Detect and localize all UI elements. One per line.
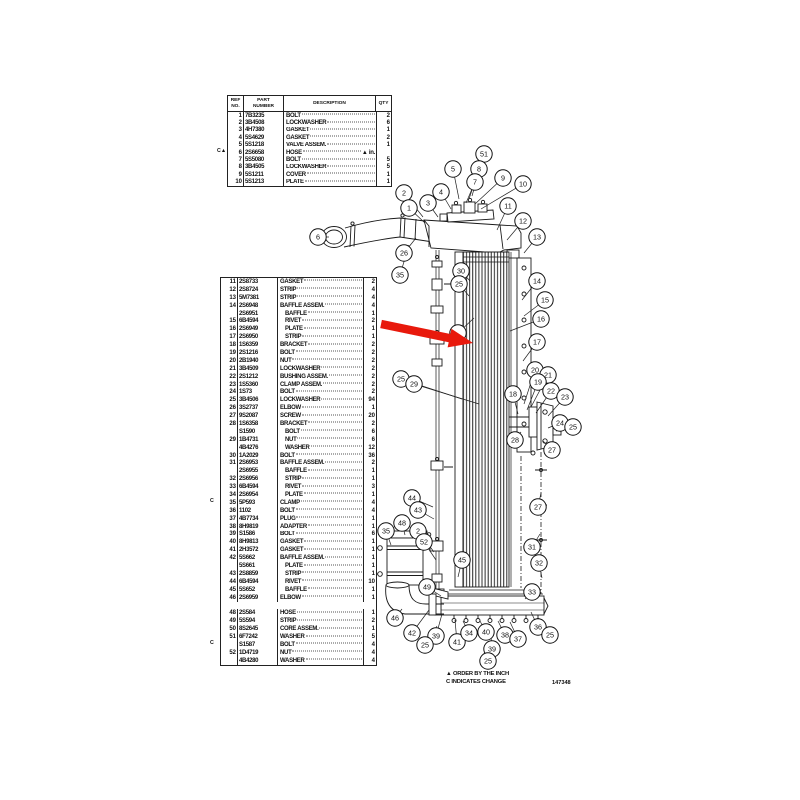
table-row: 2S6951BAFFLE1 [221, 310, 376, 318]
callout-17: 17 [529, 334, 545, 350]
quantity: 1 [376, 127, 391, 134]
ref-no: 7 [228, 156, 244, 163]
description: GASKET [278, 546, 363, 554]
part-number: 2S6658 [244, 149, 284, 156]
part-number: 5P593 [238, 499, 278, 507]
exploded-view-diagram: 6213455187910111213263514151617302525292… [0, 0, 800, 800]
callout-18: 18 [505, 386, 521, 402]
ref-no: 21 [221, 365, 238, 373]
part-number: 2S6959 [238, 594, 278, 602]
dot-leader [302, 406, 362, 407]
description: CLAMP [278, 499, 363, 507]
table-row: 231S5360CLAMP ASSEM.2 [221, 381, 376, 389]
dot-leader [327, 121, 375, 122]
description: BOLT [278, 507, 363, 515]
dot-leader [296, 509, 362, 510]
quantity: 1 [363, 333, 376, 341]
dot-leader [296, 351, 362, 352]
description-text: BOLT [280, 453, 295, 459]
svg-text:27: 27 [548, 446, 556, 455]
callout-14: 14 [529, 273, 545, 289]
callout-23: 23 [557, 389, 573, 405]
table-row: 336B4594RIVET3 [221, 483, 376, 491]
description-text: HOSE [280, 610, 296, 616]
description: BOLT [278, 388, 363, 396]
callout-49: 49 [419, 579, 435, 595]
dot-leader [302, 414, 362, 415]
part-number: 4B7734 [238, 515, 278, 523]
quantity: 2 [363, 617, 376, 625]
quantity: 36 [363, 452, 376, 460]
header-desc: DESCRIPTION [284, 96, 376, 111]
description-text: BOLT [280, 350, 295, 356]
part-number: 6B4594 [238, 317, 278, 325]
dot-leader [304, 548, 362, 549]
description-text: PLATE [285, 326, 303, 332]
part-number: 2S6953 [238, 459, 278, 467]
ref-no: 4 [228, 134, 244, 141]
table-row: 39S1586BOLT6 [221, 531, 376, 539]
callout-35: 35 [378, 523, 394, 539]
quantity: 1 [363, 538, 376, 546]
description: BOLT [278, 428, 363, 436]
part-number: 8H9813 [238, 538, 278, 546]
description-text: BOLT [285, 429, 300, 435]
callout-7: 7 [467, 174, 483, 190]
description: BOLT [284, 112, 376, 119]
svg-text:17: 17 [533, 338, 541, 347]
description-text: BRACKET [280, 342, 307, 348]
callout-2: 2 [396, 185, 412, 201]
description-text: BRACKET [280, 421, 307, 427]
part-number: 2S8733 [238, 278, 278, 286]
table-row: 122S8724STRIP4 [221, 286, 376, 294]
table-row: 181S6359BRACKET2 [221, 341, 376, 349]
svg-text:35: 35 [396, 271, 404, 280]
ref-no: 41 [221, 546, 238, 554]
svg-text:46: 46 [391, 614, 399, 623]
footnotes: ▲ ORDER BY THE INCH C INDICATES CHANGE [446, 670, 509, 687]
ref-no [221, 310, 238, 318]
svg-text:29: 29 [410, 380, 418, 389]
dot-leader [302, 580, 362, 581]
ref-no: 23 [221, 381, 238, 389]
change-marker: C [210, 641, 214, 646]
quantity: 5 [363, 633, 376, 641]
description: RIVET [278, 483, 363, 491]
description: BRACKET [278, 341, 363, 349]
description-text: STRIP [285, 476, 301, 482]
svg-text:4: 4 [439, 188, 443, 197]
dot-leader [325, 304, 362, 305]
ref-no: 30 [221, 452, 238, 460]
description: ELBOW [278, 594, 363, 602]
ref-no: 18 [221, 341, 238, 349]
quantity: 12 [363, 444, 376, 452]
table-row: 17B3235BOLT2 [228, 112, 391, 119]
table-row: 162S6949PLATE1 [221, 325, 376, 333]
callout-27: 27 [544, 442, 560, 458]
part-number: 2S6954 [238, 491, 278, 499]
table-row: 142S6948BAFFLE ASSEM.4 [221, 302, 376, 310]
quantity: 1 [363, 546, 376, 554]
callout-46: 46 [387, 610, 403, 626]
ref-no: 34 [221, 491, 238, 499]
callout-10: 10 [515, 176, 531, 192]
description: COVER [284, 171, 376, 178]
description-text: RIVET [285, 318, 301, 324]
quantity: 6 [363, 531, 376, 539]
description-text: BOLT [280, 642, 295, 648]
quantity: 1 [363, 404, 376, 412]
description: GASKET [284, 134, 376, 141]
quantity: 6 [376, 119, 391, 126]
table-row: 156B4594RIVET2 [221, 317, 376, 325]
svg-text:25: 25 [421, 641, 429, 650]
description-text: NUT [280, 358, 291, 364]
description: CORE ASSEM. [278, 625, 363, 633]
dot-leader [304, 327, 362, 328]
description: BAFFLE ASSEM. [278, 302, 363, 310]
description-text: BOLT [280, 508, 295, 514]
ref-no [221, 657, 238, 665]
table-row: 4B4276WASHER12 [221, 444, 376, 452]
description-text: LOCKWASHER [280, 397, 320, 403]
description: HOSE [278, 609, 363, 617]
description-text: WASHER [280, 658, 305, 664]
description-text: BAFFLE ASSEM. [280, 303, 324, 309]
dot-leader [302, 477, 362, 478]
dot-leader [308, 312, 362, 313]
quantity: 2 [376, 134, 391, 141]
table-row: 495S594STRIP2 [221, 617, 376, 625]
svg-text:12: 12 [519, 217, 527, 226]
table-row: 408H9813GASKET1 [221, 538, 376, 546]
table-row: 135M7381STRIP4 [221, 294, 376, 302]
table-row: 222S1212BUSHING ASSEM.2 [221, 373, 376, 381]
table-row: 446B4594RIVET10 [221, 578, 376, 586]
table-row: 342S6954PLATE1 [221, 491, 376, 499]
ref-no: 43 [221, 570, 238, 578]
ref-no: 36 [221, 507, 238, 515]
ref-no [221, 467, 238, 475]
description: BAFFLE [278, 467, 363, 475]
quantity: 4 [363, 286, 376, 294]
table-row: 202B1940NUT2 [221, 357, 376, 365]
table-row: 253B4506LOCKWASHER94 [221, 396, 376, 404]
table-row: 23B4508LOCKWASHER6 [228, 119, 391, 126]
callout-37: 37 [510, 631, 526, 647]
svg-text:19: 19 [534, 378, 542, 387]
description-text: BOLT [286, 157, 301, 163]
dot-leader [302, 572, 362, 573]
quantity: 2 [363, 381, 376, 389]
header-ref: REF NO. [228, 96, 244, 111]
part-number: 3B4508 [244, 119, 284, 126]
svg-text:23: 23 [561, 393, 569, 402]
table-row: 83B4505LOCKWASHER5 [228, 164, 391, 171]
ref-no: 13 [221, 294, 238, 302]
dot-leader [296, 390, 362, 391]
description-text: PLATE [286, 179, 304, 185]
table-row: 432S8859STRIP1 [221, 570, 376, 578]
description: BOLT [284, 156, 376, 163]
svg-text:41: 41 [453, 638, 461, 647]
dot-leader [319, 627, 362, 628]
quantity: 6 [363, 428, 376, 436]
description-text: COVER [286, 172, 306, 178]
quantity: 1 [363, 491, 376, 499]
quantity: 1 [363, 594, 376, 602]
callout-35: 35 [392, 267, 408, 283]
note-indicates-change: C INDICATES CHANGE [446, 678, 509, 686]
quantity: 1 [363, 562, 376, 570]
part-number: 5S1211 [244, 171, 284, 178]
quantity: 1 [363, 325, 376, 333]
dot-leader [297, 438, 362, 439]
description: BAFFLE ASSEM. [278, 459, 363, 467]
quantity: 4 [363, 641, 376, 649]
ref-no: 17 [221, 333, 238, 341]
description: GASKET [284, 127, 376, 134]
table-row: 34H7380GASKET1 [228, 127, 391, 134]
description-text: BOLT [280, 531, 295, 537]
description: CLAMP ASSEM. [278, 381, 363, 389]
quantity: 94 [363, 396, 376, 404]
svg-text:25: 25 [484, 657, 492, 666]
description-text: NUT [285, 437, 296, 443]
table-row: 172S6950STRIP1 [221, 333, 376, 341]
ref-no: 24 [221, 388, 238, 396]
svg-text:16: 16 [537, 315, 545, 324]
svg-text:34: 34 [465, 629, 473, 638]
ref-no: 27 [221, 412, 238, 420]
quantity: 1 [363, 586, 376, 594]
ref-no: 29 [221, 436, 238, 444]
ref-no: 48 [221, 609, 238, 617]
dot-leader [292, 651, 362, 652]
parts-catalog-page: 6213455187910111213263514151617302525292… [0, 0, 800, 800]
quantity: 2 [363, 341, 376, 349]
svg-text:5: 5 [451, 165, 455, 174]
table-row: 112S8733GASKET2 [221, 278, 376, 286]
dot-leader [297, 619, 362, 620]
description: STRIP [278, 617, 363, 625]
dot-leader [305, 180, 375, 181]
ref-no: 50 [221, 625, 238, 633]
description: NUT [278, 436, 363, 444]
table-row: 281S6358BRACKET2 [221, 420, 376, 428]
description-text: LOCKWASHER [280, 366, 320, 372]
change-marker: C▲ [217, 149, 226, 154]
dot-leader [303, 151, 361, 152]
ref-no: 1 [228, 112, 244, 119]
description-text: BAFFLE ASSEM. [280, 460, 324, 466]
part-number: 3S2737 [238, 404, 278, 412]
svg-text:25: 25 [569, 423, 577, 432]
callout-51: 51 [476, 146, 492, 162]
table-row: 75S5080BOLT5 [228, 156, 391, 163]
description: PLATE [278, 325, 363, 333]
description-text: ELBOW [280, 405, 301, 411]
callout-27: 27 [530, 499, 546, 515]
quantity: 1 [363, 515, 376, 523]
svg-text:18: 18 [509, 390, 517, 399]
quantity: 2 [363, 357, 376, 365]
part-number: 2S6955 [238, 467, 278, 475]
svg-text:13: 13 [533, 233, 541, 242]
table-row: 412H3572GASKET1 [221, 546, 376, 554]
quantity: 1 [363, 475, 376, 483]
svg-text:35: 35 [382, 527, 390, 536]
description: BAFFLE [278, 586, 363, 594]
part-number: 1A2029 [238, 452, 278, 460]
ref-no: 35 [221, 499, 238, 507]
ref-no: 25 [221, 396, 238, 404]
svg-text:28: 28 [511, 436, 519, 445]
svg-text:1: 1 [407, 204, 411, 213]
change-marker: C [210, 499, 214, 504]
quantity: 4 [363, 649, 376, 657]
description-text: BOLT [280, 389, 295, 395]
description: BOLT [278, 452, 363, 460]
ref-no: 19 [221, 349, 238, 357]
callout-34: 34 [461, 625, 477, 641]
quantity: 1 [376, 171, 391, 178]
svg-text:48: 48 [398, 519, 406, 528]
ref-no: 6 [228, 149, 244, 156]
dot-leader [304, 540, 362, 541]
description-text: RIVET [285, 579, 301, 585]
callout-25: 25 [565, 419, 581, 435]
svg-text:2: 2 [416, 527, 420, 536]
quantity: 4 [363, 294, 376, 302]
description-text: SCREW [280, 413, 301, 419]
part-number: S1586 [238, 531, 278, 539]
callout-9: 9 [495, 170, 511, 186]
ref-no: 52 [221, 649, 238, 657]
header-qty: QTY [376, 96, 391, 111]
table-row: 263S2737ELBOW1 [221, 404, 376, 412]
table-row: 105S1213PLATE1 [228, 179, 391, 186]
description-text: GASKET [286, 127, 309, 133]
callout-25: 25 [542, 627, 558, 643]
ref-no: 2 [228, 119, 244, 126]
callout-4: 4 [433, 184, 449, 200]
part-number: 7B3235 [244, 112, 284, 119]
svg-text:38: 38 [501, 631, 509, 640]
description-text: VALVE ASSEM. [286, 142, 326, 148]
svg-text:6: 6 [316, 233, 320, 242]
svg-text:37: 37 [514, 635, 522, 644]
callout-29: 29 [406, 376, 422, 392]
dot-leader [304, 564, 362, 565]
svg-text:24: 24 [556, 419, 564, 428]
table-row: 322S6956STRIP1 [221, 475, 376, 483]
svg-text:49: 49 [423, 583, 431, 592]
part-number: 2S8724 [238, 286, 278, 294]
callout-52: 52 [416, 534, 432, 550]
dot-leader [302, 596, 362, 597]
description-text: ADAPTER [280, 524, 307, 530]
quantity: 2 [363, 420, 376, 428]
dot-leader [308, 343, 362, 344]
description: WASHER [278, 633, 363, 641]
quantity: 1 [363, 570, 376, 578]
description-text: STRIP [280, 287, 296, 293]
note-order-by-inch: ▲ ORDER BY THE INCH [446, 670, 509, 678]
ref-no [221, 428, 238, 436]
description-text: STRIP [285, 334, 301, 340]
part-number: 4H7380 [244, 127, 284, 134]
dot-leader [296, 643, 362, 644]
svg-text:22: 22 [547, 387, 555, 396]
table-row: 5S661PLATE1 [221, 562, 376, 570]
table-row: 45S4629GASKET2 [228, 134, 391, 141]
callout-5: 5 [445, 161, 461, 177]
quantity: 2 [363, 349, 376, 357]
ref-no: 40 [221, 538, 238, 546]
quantity: 5 [376, 164, 391, 171]
description: BAFFLE ASSEM. [278, 554, 363, 562]
svg-text:40: 40 [482, 628, 490, 637]
dot-leader [301, 430, 362, 431]
dot-leader [310, 136, 375, 137]
dot-leader [302, 485, 362, 486]
quantity: 3 [363, 483, 376, 491]
callout-48: 48 [394, 515, 410, 531]
quantity: 1 [363, 554, 376, 562]
dot-leader [302, 335, 362, 336]
description-text: GASKET [286, 135, 309, 141]
svg-text:20: 20 [531, 366, 539, 375]
description-text: PLATE [285, 563, 303, 569]
description-text: BAFFLE [285, 468, 307, 474]
part-number: 1D4719 [238, 649, 278, 657]
description-text: GASKET [280, 279, 303, 285]
svg-text:15: 15 [541, 296, 549, 305]
table-row: 4B4280WASHER4 [221, 657, 376, 665]
description-text: ELBOW [280, 595, 301, 601]
svg-text:45: 45 [458, 556, 466, 565]
dot-leader [310, 128, 375, 129]
table-row: 213B4509LOCKWASHER2 [221, 365, 376, 373]
ref-no: 20 [221, 357, 238, 365]
ref-no: 16 [221, 325, 238, 333]
description: SCREW [278, 412, 363, 420]
part-number: S1590 [238, 428, 278, 436]
dot-leader [292, 359, 362, 360]
callout-16: 16 [533, 311, 549, 327]
part-number: 5M7381 [238, 294, 278, 302]
description-text: STRIP [280, 618, 296, 624]
description: PLUG [278, 515, 363, 523]
quantity: 20 [363, 412, 376, 420]
part-number: 4B4280 [238, 657, 278, 665]
description-text: BAFFLE [285, 587, 307, 593]
header-part: PART NUMBER [244, 96, 284, 111]
description-text: GASKET [280, 539, 303, 545]
description: BRACKET [278, 420, 363, 428]
part-number: 1S73 [238, 388, 278, 396]
quantity: 2 [363, 278, 376, 286]
parts-table-top: REF NO. PART NUMBER DESCRIPTION QTY 17B3… [227, 95, 392, 187]
table-row: 361102BOLT4 [221, 507, 376, 515]
svg-text:36: 36 [534, 623, 542, 632]
quantity: 1 [363, 310, 376, 318]
callout-3: 3 [420, 195, 436, 211]
svg-text:11: 11 [504, 202, 511, 211]
